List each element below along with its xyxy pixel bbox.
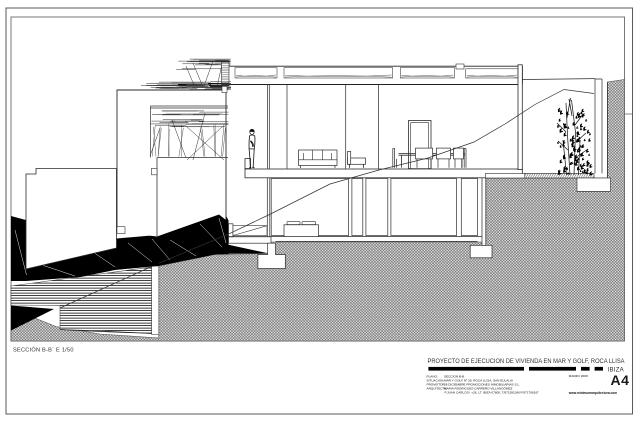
- svg-text:MARIA RODRIGUEZ-CARREÑO VILLAN: MARIA RODRIGUEZ-CARREÑO VILLANGÓMEZ: [444, 385, 513, 390]
- svg-text:MARZO 2008: MARZO 2008: [569, 374, 588, 378]
- svg-text:PROYECTO DE EJECUCION DE VIVIE: PROYECTO DE EJECUCION DE VIVIENDA EN MAR…: [428, 359, 625, 365]
- svg-text:SECCIÓN B-B´ E 1/50: SECCIÓN B-B´ E 1/50: [13, 346, 74, 353]
- svg-text:www.minimumarquitectura.com: www.minimumarquitectura.com: [568, 391, 617, 395]
- svg-text:A4: A4: [611, 372, 630, 388]
- svg-text:P.JUAN CARLOS I +26, LT, IBIZA: P.JUAN CARLOS I +26, LT, IBIZA 07800, T/…: [445, 391, 540, 395]
